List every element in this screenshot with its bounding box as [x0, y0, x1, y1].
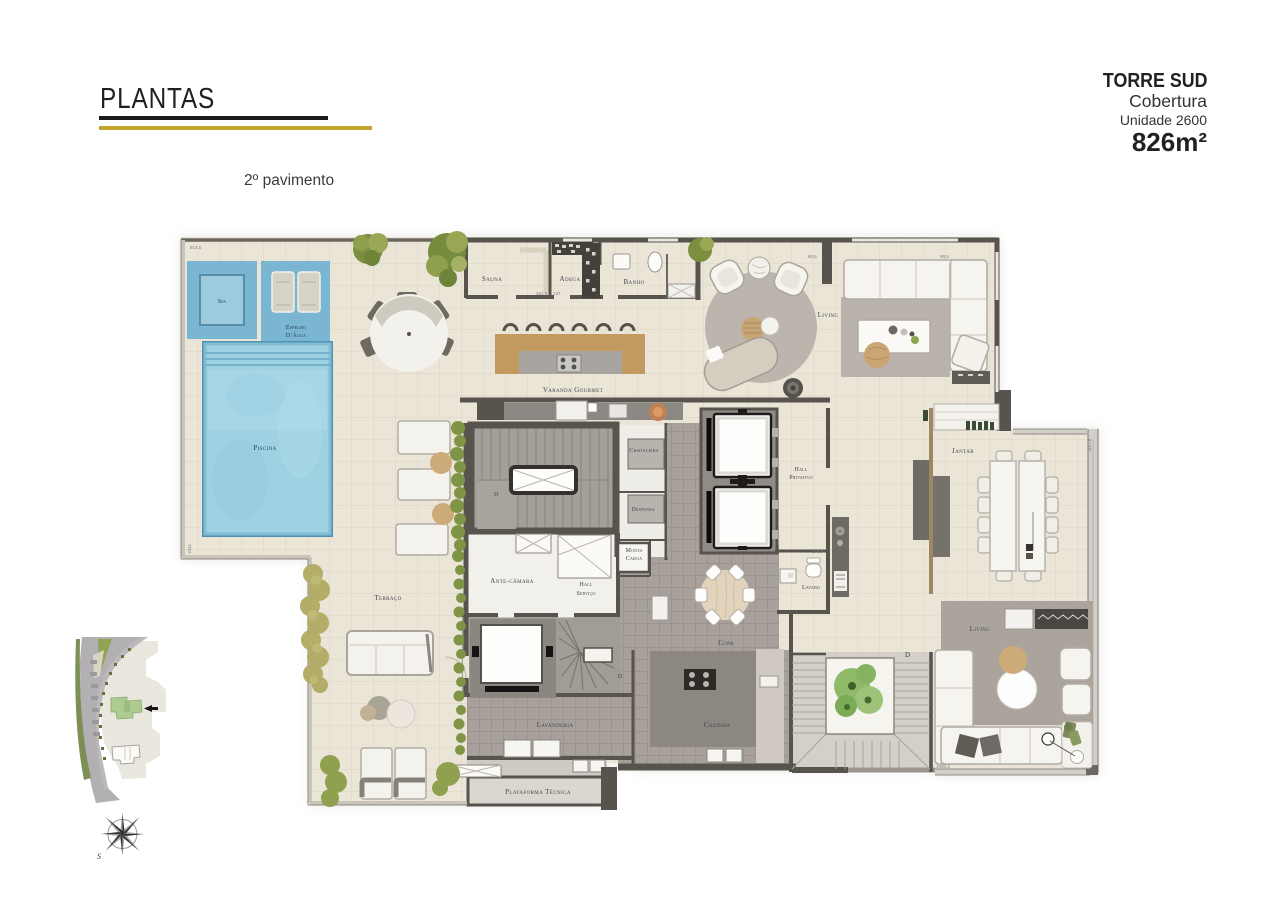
svg-text:D: D — [618, 674, 623, 680]
svg-text:Monta: Monta — [625, 548, 642, 554]
svg-text:Lavabo: Lavabo — [802, 585, 820, 591]
svg-text:1107,8: 1107,8 — [1087, 438, 1092, 452]
svg-text:Terraço: Terraço — [374, 594, 401, 602]
svg-text:Piscina: Piscina — [253, 444, 276, 452]
svg-text:D: D — [494, 492, 499, 498]
svg-text:Hall: Hall — [795, 467, 808, 473]
svg-text:D: D — [905, 651, 910, 659]
svg-text:137: 137 — [553, 291, 561, 296]
svg-text:Cozinha: Cozinha — [704, 721, 731, 729]
svg-text:Adega: Adega — [560, 275, 581, 283]
svg-text:Hall: Hall — [580, 582, 593, 588]
svg-text:Serviço: Serviço — [576, 591, 595, 597]
svg-text:Copa: Copa — [718, 639, 734, 647]
svg-text:Cristaleira: Cristaleira — [629, 448, 658, 454]
svg-text:914,5: 914,5 — [190, 245, 202, 250]
svg-text:Jantar: Jantar — [952, 447, 974, 455]
svg-text:Espelho: Espelho — [286, 325, 306, 331]
svg-text:S: S — [97, 852, 101, 861]
svg-text:80,5: 80,5 — [808, 254, 817, 259]
svg-text:Despensa: Despensa — [631, 507, 654, 513]
svg-text:178,8: 178,8 — [812, 549, 824, 554]
svg-text:D’Água: D’Água — [286, 331, 307, 339]
svg-text:Banho: Banho — [623, 278, 644, 286]
svg-text:1041: 1041 — [187, 543, 192, 554]
svg-text:Varanda Gourmet: Varanda Gourmet — [543, 386, 603, 394]
svg-text:1000,3: 1000,3 — [936, 764, 950, 769]
svg-text:Plataforma Técnica: Plataforma Técnica — [505, 788, 571, 796]
svg-text:Carga: Carga — [626, 556, 642, 562]
svg-text:Living: Living — [818, 311, 839, 319]
svg-text:Sauna: Sauna — [482, 275, 502, 283]
svg-text:Lavanderia: Lavanderia — [537, 721, 574, 729]
svg-text:Ante-câmara: Ante-câmara — [490, 577, 533, 585]
svg-text:Spa: Spa — [218, 299, 227, 305]
svg-text:261,5: 261,5 — [536, 291, 548, 296]
svg-text:Privativo: Privativo — [789, 475, 813, 481]
svg-text:90,5: 90,5 — [940, 254, 949, 259]
svg-text:Living: Living — [970, 625, 991, 633]
